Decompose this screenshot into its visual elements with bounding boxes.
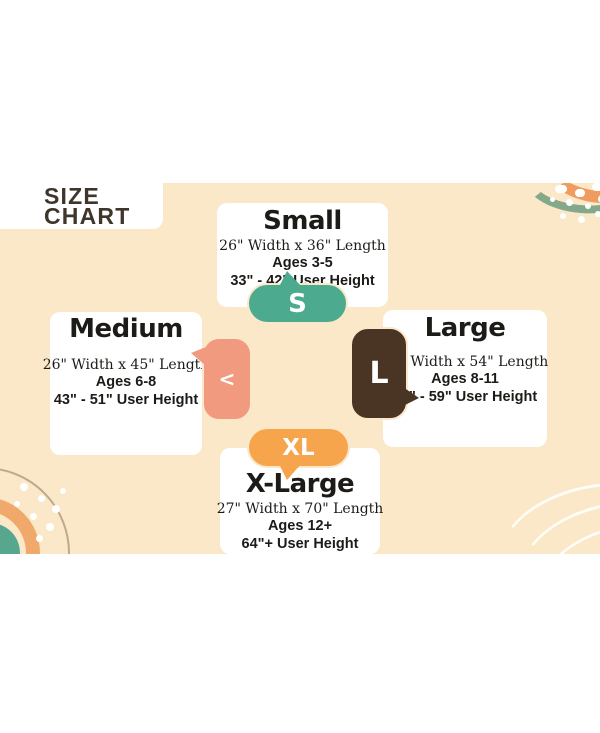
deco-white-dot [578,216,585,223]
size-ages-large: Ages 8-11 [431,371,499,388]
size-user-height-xlarge: 64"+ User Height [242,535,359,554]
deco-white-dot [60,488,66,494]
size-ages-small: Ages 3-5 [272,255,332,272]
deco-white-dash [592,183,600,191]
deco-white-dot [585,203,591,209]
deco-white-dot [36,535,43,542]
size-chart-infographic: SIZE CHART Small 26" Width x 36" Length … [0,0,600,733]
large-badge-bubble: L [350,327,408,420]
size-name-medium: Medium [69,314,183,345]
page-title: SIZE CHART [0,186,131,227]
deco-white-dot [30,513,37,520]
bubble-tail-right [403,387,419,406]
size-card-medium: Medium 26" Width x 45" Length Ages 6-8 4… [50,312,202,455]
size-dimensions-small: 26" Width x 36" Length [219,237,386,255]
deco-white-dot [46,523,54,531]
size-ages-xlarge: Ages 12+ [268,518,332,535]
deco-white-dot [52,505,60,513]
deco-white-dot [550,197,555,202]
size-name-large: Large [425,313,506,344]
size-name-small: Small [263,206,342,237]
deco-white-dot [595,211,600,217]
medium-badge-label: < [219,367,236,391]
size-user-height-medium: 43" - 51" User Height [54,391,198,410]
bubble-tail-down [279,464,301,480]
medium-badge-bubble: < [202,337,252,421]
bubble-tail-up [279,271,302,287]
deco-white-dot [38,495,45,502]
deco-white-dot [566,199,573,206]
deco-white-dash [555,185,567,193]
title-box: SIZE CHART [0,183,163,229]
deco-white-dash [575,189,585,197]
bubble-tail-left [191,347,206,366]
size-ages-medium: Ages 6-8 [96,374,156,391]
canvas-background: SIZE CHART Small 26" Width x 36" Length … [0,183,600,554]
title-line-2: CHART [44,206,131,227]
deco-white-dot [20,483,28,491]
xlarge-badge-bubble: XL [247,427,350,468]
size-dimensions-medium: 26" Width x 45" Length [43,356,210,374]
large-badge-label: L [369,356,388,391]
xlarge-badge-label: XL [282,435,314,461]
size-dimensions-xlarge: 27" Width x 70" Length [217,500,384,518]
deco-white-dot [560,213,566,219]
small-badge-bubble: S [247,283,348,324]
deco-white-dot [14,501,20,507]
small-badge-label: S [288,289,307,319]
